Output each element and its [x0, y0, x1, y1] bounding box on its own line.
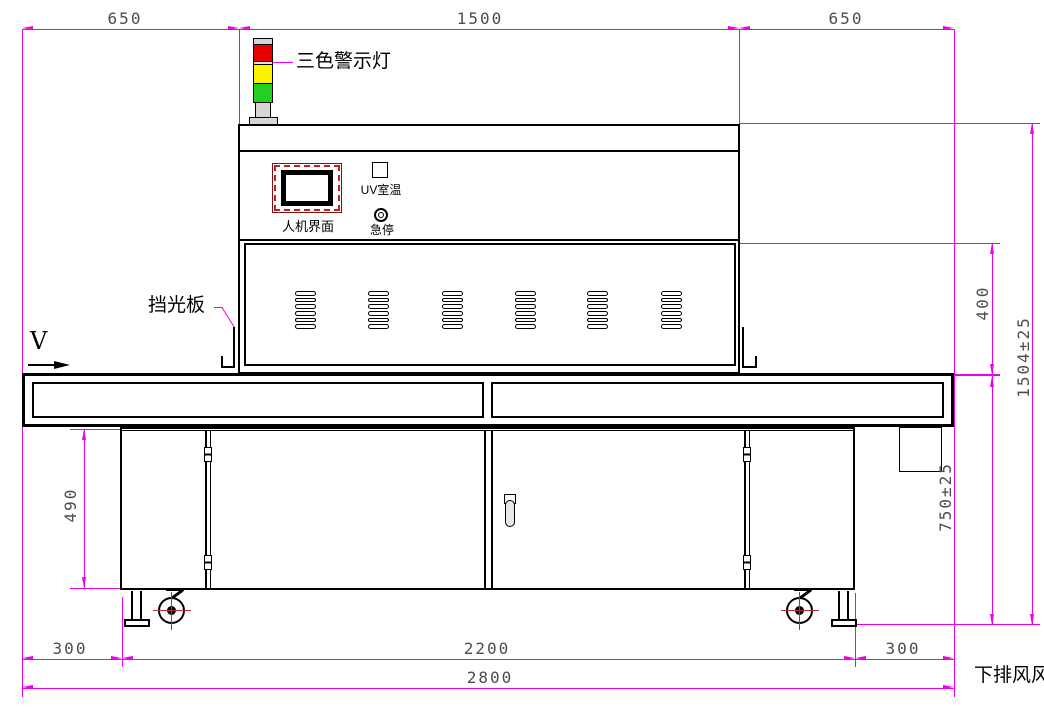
dim-top-650-left: 650: [95, 11, 155, 27]
dim-arrow: [943, 656, 954, 660]
light-shield-left: [221, 366, 235, 368]
louver-slat: [442, 291, 463, 296]
dim-arrow: [990, 364, 994, 375]
dim-arrow: [943, 685, 954, 689]
dim-arrow: [22, 685, 33, 689]
door-hinge: [743, 447, 751, 462]
louver-slat: [587, 291, 608, 296]
leveling-foot-right: [838, 591, 849, 620]
center-mark: [171, 592, 172, 630]
louver-slat: [368, 291, 389, 296]
vent-louver: [587, 291, 608, 330]
louver-slat: [515, 311, 536, 316]
vent-louver: [295, 291, 316, 330]
louver-slat: [661, 311, 682, 316]
extension-line: [740, 123, 1040, 124]
dim-arrow: [855, 656, 866, 660]
dimension-line-overall-width: [22, 688, 954, 689]
center-mark: [153, 610, 191, 611]
louver-slat: [661, 291, 682, 296]
center-mark: [799, 592, 800, 630]
door-handle-grip: [505, 500, 515, 527]
louver-slat: [587, 324, 608, 329]
tower-light-red: [253, 44, 273, 62]
louver-slat: [295, 311, 316, 316]
direction-arrow-line: [28, 364, 56, 366]
direction-arrow-head: [54, 361, 70, 369]
center-mark: [781, 610, 819, 611]
extension-line: [239, 29, 240, 124]
dimension-line-400-750: [992, 243, 993, 625]
dim-arrow: [228, 26, 239, 30]
dim-left-490: 490: [62, 445, 80, 565]
bottom-exhaust-label: 下排风风: [974, 666, 1044, 686]
leveling-foot-left-base: [124, 619, 150, 627]
dimension-line-top: [22, 29, 954, 30]
dim-bottom-300-right: 300: [873, 641, 933, 657]
dim-top-650-right: 650: [816, 11, 876, 27]
dim-top-1500: 1500: [450, 11, 510, 27]
door-edge: [484, 431, 486, 588]
conveyor-table-panel-left: [32, 382, 484, 418]
louver-slat: [368, 304, 389, 309]
vent-louver: [661, 291, 682, 330]
extension-line: [70, 429, 122, 430]
tower-light-label: 三色警示灯: [296, 52, 391, 72]
dim-arrow: [943, 26, 954, 30]
dim-bottom-2200: 2200: [457, 641, 517, 657]
door-edge: [491, 431, 493, 588]
louver-slat: [587, 311, 608, 316]
louver-slat: [442, 318, 463, 323]
uv-temp-label: UV室温: [356, 184, 406, 197]
leveling-foot-right-base: [831, 619, 857, 627]
louver-slat: [515, 324, 536, 329]
dim-arrow: [111, 656, 122, 660]
dim-arrow: [22, 656, 33, 660]
dim-bottom-2800: 2800: [460, 670, 520, 686]
extension-line: [855, 624, 1040, 625]
louver-slat: [442, 311, 463, 316]
louver-slat: [295, 318, 316, 323]
louver-slat: [587, 304, 608, 309]
louver-slat: [442, 298, 463, 303]
louver-slat: [295, 304, 316, 309]
dim-arrow: [844, 656, 855, 660]
extension-line: [70, 588, 122, 589]
door-hinge: [204, 447, 212, 462]
louver-slat: [442, 324, 463, 329]
dim-arrow: [82, 429, 86, 440]
uv-curing-machine-drawing: 三色警示灯 人机界面 UV室温 急停 挡光板 V: [0, 0, 1044, 714]
tower-light-green: [253, 83, 273, 103]
louver-slat: [295, 298, 316, 303]
light-shield-right: [742, 327, 744, 368]
louver-slat: [587, 298, 608, 303]
light-shield-left: [233, 327, 235, 368]
vent-louver: [442, 291, 463, 330]
uv-temp-indicator: [372, 162, 388, 178]
dim-arrow: [239, 26, 250, 30]
conveyor-table-panel-right: [491, 382, 944, 418]
louver-slat: [661, 304, 682, 309]
tower-light-column: [255, 102, 271, 118]
dim-arrow: [82, 577, 86, 588]
dim-arrow: [22, 26, 33, 30]
tower-light-yellow: [253, 64, 273, 84]
hmi-label: 人机界面: [282, 220, 334, 233]
leader-tower-light: [272, 62, 293, 63]
dim-bottom-300-left: 300: [40, 641, 100, 657]
louver-slat: [295, 324, 316, 329]
louver-slat: [442, 304, 463, 309]
louver-slat: [515, 298, 536, 303]
dim-arrow: [990, 376, 994, 387]
extension-line: [737, 243, 1000, 244]
dim-arrow: [1030, 123, 1034, 134]
dim-arrow: [739, 26, 750, 30]
extension-line: [22, 29, 23, 697]
louver-slat: [368, 311, 389, 316]
leader-light-shield-diagonal: [222, 307, 235, 327]
louver-slat: [368, 298, 389, 303]
louver-slat: [295, 291, 316, 296]
door-hinge: [204, 555, 212, 570]
door-hinge: [743, 555, 751, 570]
vent-louver: [515, 291, 536, 330]
dim-arrow: [1030, 614, 1034, 625]
emergency-stop-inner: [378, 212, 384, 218]
extension-line: [954, 29, 955, 697]
tower-light-base: [249, 117, 278, 125]
louver-slat: [368, 318, 389, 323]
dim-arrow: [728, 26, 739, 30]
louver-slat: [515, 291, 536, 296]
light-shield-label: 挡光板: [148, 296, 205, 316]
vent-louver: [368, 291, 389, 330]
direction-label: V: [30, 331, 47, 351]
dim-right-1504: 1504±25: [1015, 297, 1033, 417]
light-shield-right: [755, 356, 757, 368]
dim-arrow: [990, 614, 994, 625]
dim-right-400: 400: [974, 243, 992, 363]
dimension-line-490: [84, 429, 85, 588]
leveling-foot-left: [131, 591, 142, 620]
emergency-stop-label: 急停: [368, 224, 396, 237]
hmi-screen: [281, 170, 333, 206]
panel-bottom-line: [240, 239, 738, 241]
dim-right-750: 750±25: [937, 437, 955, 557]
louver-slat: [368, 324, 389, 329]
louver-slat: [661, 298, 682, 303]
dim-arrow: [122, 656, 133, 660]
louver-slat: [515, 304, 536, 309]
top-cap-line: [240, 150, 738, 152]
louver-slat: [661, 324, 682, 329]
louver-slat: [587, 318, 608, 323]
louver-slat: [661, 318, 682, 323]
light-shield-left: [221, 356, 223, 368]
dimension-line-bottom: [22, 659, 954, 660]
louver-slat: [515, 318, 536, 323]
